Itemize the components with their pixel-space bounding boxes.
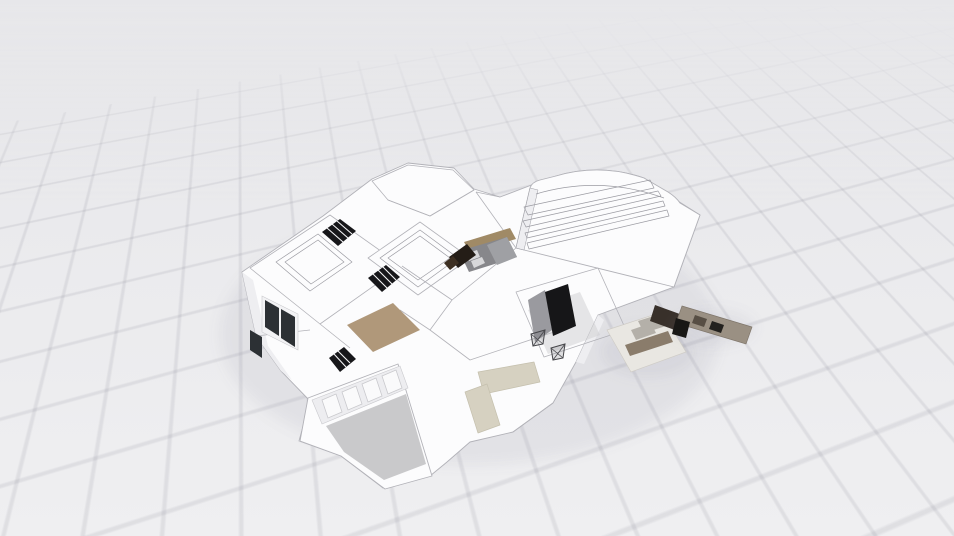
outside-kitchen <box>670 306 754 346</box>
house-model <box>0 0 954 536</box>
floorplan-3d-viewport[interactable] <box>0 0 954 536</box>
